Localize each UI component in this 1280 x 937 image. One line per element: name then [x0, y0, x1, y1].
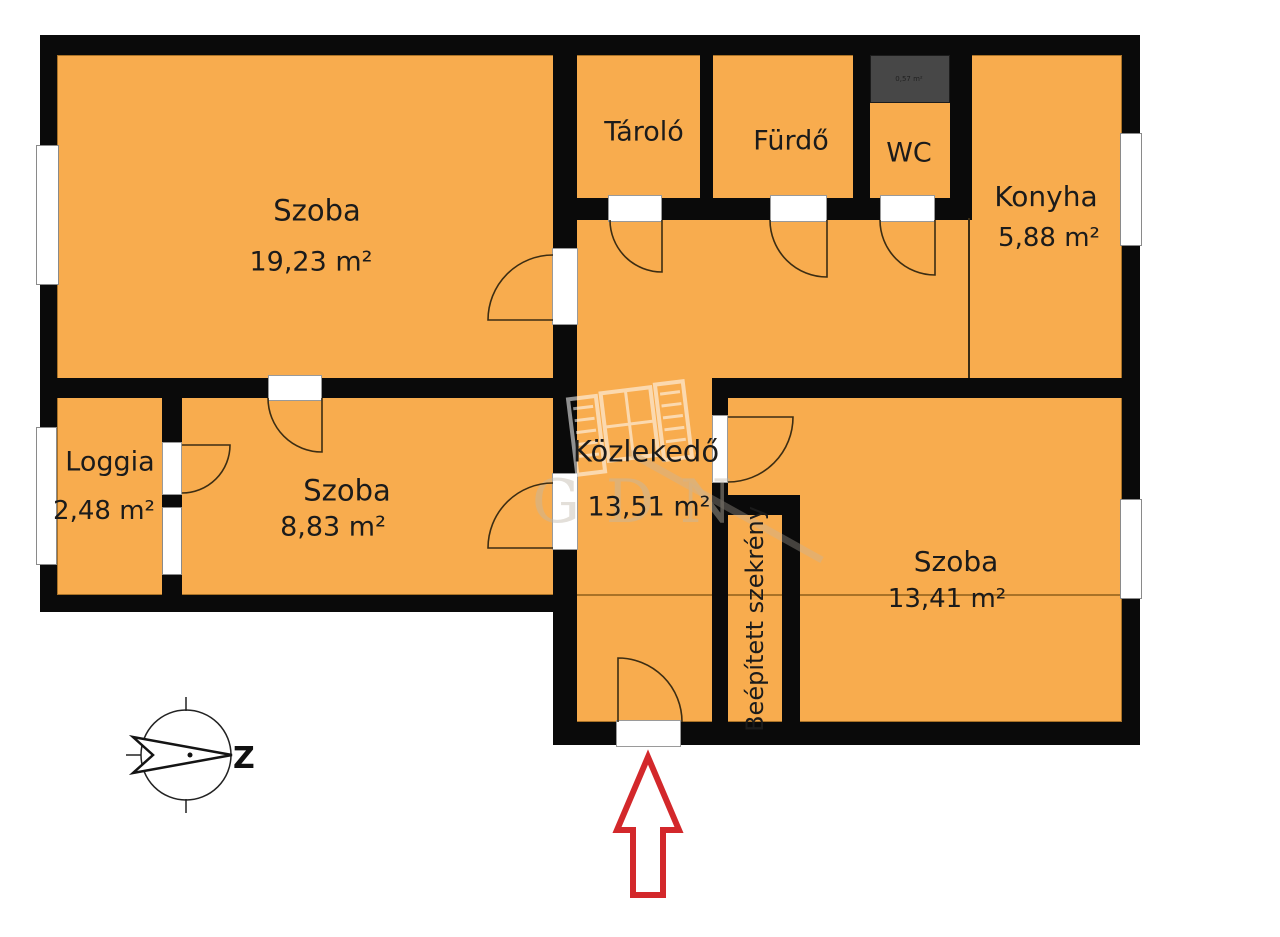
- room-area-szoba-middle: 8,83 m²: [280, 514, 386, 541]
- door-arc-furdo: [770, 220, 827, 277]
- room-area-kozlekedo: 13,51 m²: [587, 494, 710, 521]
- room-label-konyha: Konyha: [994, 183, 1097, 211]
- room-label-szoba-large: Szoba: [273, 197, 361, 226]
- room-label-wc: WC: [886, 140, 932, 167]
- room-area-loggia: 2,48 m²: [53, 498, 155, 524]
- compass-letter: Z: [233, 741, 255, 776]
- room-label-loggia: Loggia: [65, 449, 154, 476]
- door-arc-szoba-middle: [268, 398, 322, 452]
- room-area-szoba-large: 19,23 m²: [249, 249, 372, 276]
- floor-plan-canvas: GDN Z Szoba 19,23 m² Tároló Fürdő WC 0,5…: [0, 0, 1280, 937]
- door-arc-loggia: [182, 445, 230, 493]
- room-label-szoba-right: Szoba: [914, 548, 999, 576]
- room-label-closet: Beépített szekrény: [743, 506, 767, 732]
- entrance-arrow: [617, 757, 679, 895]
- compass-north-arrow: [133, 737, 232, 773]
- compass-center-dot: [188, 753, 193, 758]
- room-label-tarolo: Tároló: [604, 119, 684, 146]
- door-arc-wc: [880, 220, 935, 275]
- shaft-area-label: 0,57 m²: [895, 75, 922, 83]
- compass-rose: Z: [126, 697, 255, 813]
- room-label-kozlekedo: Közlekedő: [573, 438, 719, 467]
- room-area-konyha: 5,88 m²: [998, 225, 1100, 251]
- room-area-szoba-right: 13,41 m²: [888, 586, 1006, 612]
- room-label-szoba-middle: Szoba: [303, 477, 391, 506]
- door-arc-entrance: [618, 658, 682, 722]
- door-arc-szoba-large: [488, 255, 553, 320]
- watermark-logo: GDN: [532, 381, 822, 560]
- door-arc-tarolo: [610, 220, 662, 272]
- room-label-furdo: Fürdő: [753, 128, 828, 155]
